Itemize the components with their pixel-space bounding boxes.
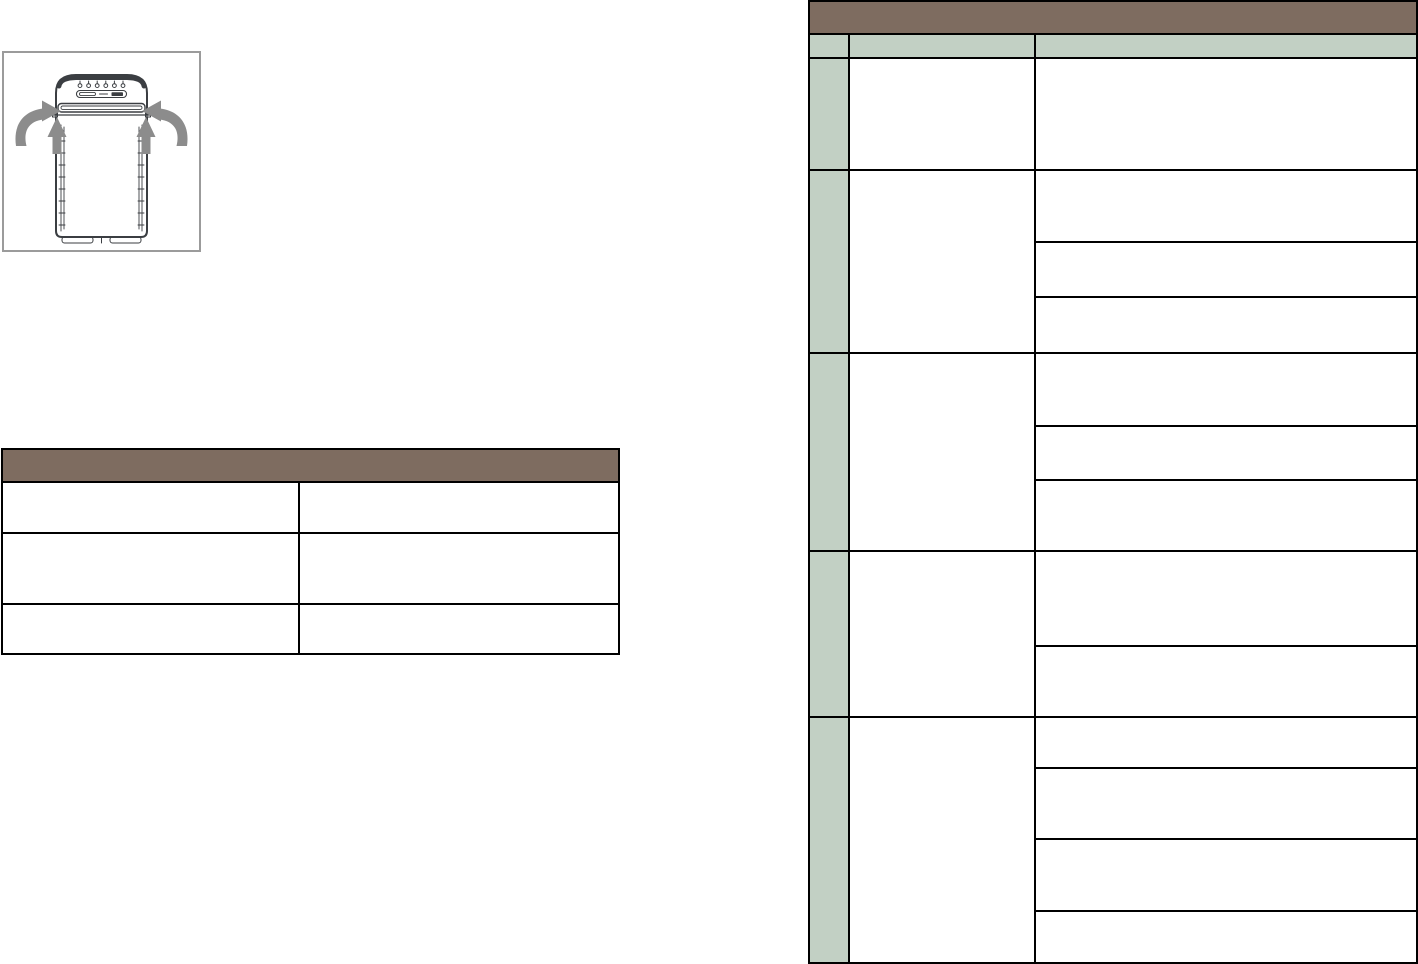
table-cell bbox=[299, 604, 619, 654]
column-header bbox=[1035, 34, 1417, 58]
detail-cell bbox=[1035, 551, 1417, 646]
group-label-cell bbox=[809, 58, 849, 170]
group-label-cell bbox=[809, 717, 849, 963]
group-middle-cell bbox=[849, 353, 1035, 551]
side-grille-ticks bbox=[59, 141, 144, 225]
table-row bbox=[809, 717, 1417, 768]
table-cell bbox=[2, 604, 299, 654]
detail-cell bbox=[1035, 480, 1417, 551]
table-cell bbox=[2, 482, 299, 533]
detail-cell bbox=[1035, 426, 1417, 480]
column-header bbox=[809, 34, 849, 58]
group-middle-cell bbox=[849, 58, 1035, 170]
group-label-cell bbox=[809, 353, 849, 551]
manual-page bbox=[0, 0, 1418, 964]
table-row bbox=[809, 170, 1417, 242]
column-header bbox=[849, 34, 1035, 58]
detail-cell bbox=[1035, 911, 1417, 963]
table-row bbox=[809, 353, 1417, 426]
group-middle-cell bbox=[849, 717, 1035, 963]
display-bar bbox=[77, 91, 127, 98]
detail-cell bbox=[1035, 768, 1417, 839]
right-table-title-row bbox=[809, 1, 1417, 34]
group-middle-cell bbox=[849, 551, 1035, 717]
table-row bbox=[2, 533, 619, 604]
airflow-arrows-right bbox=[137, 101, 188, 155]
detail-cell bbox=[1035, 717, 1417, 768]
detail-cell bbox=[1035, 646, 1417, 717]
curved-inward-airflow-arrow-left bbox=[15, 109, 43, 147]
curved-inward-airflow-arrow-right bbox=[159, 109, 187, 147]
air-outlet-slot bbox=[53, 104, 151, 118]
detail-cell bbox=[1035, 839, 1417, 911]
group-middle-cell bbox=[849, 170, 1035, 353]
detail-cell bbox=[1035, 353, 1417, 426]
control-panel-buttons bbox=[78, 81, 125, 88]
detail-cell bbox=[1035, 58, 1417, 170]
detail-cell bbox=[1035, 297, 1417, 353]
device-figure bbox=[2, 51, 201, 252]
device-body bbox=[56, 117, 147, 243]
airflow-arrows-left bbox=[15, 101, 66, 155]
group-label-cell bbox=[809, 551, 849, 717]
left-table-title bbox=[2, 449, 619, 482]
right-table-title bbox=[809, 1, 1417, 34]
detail-cell bbox=[1035, 242, 1417, 297]
table-cell bbox=[299, 533, 619, 604]
table-row bbox=[809, 551, 1417, 646]
detail-cell bbox=[1035, 170, 1417, 242]
head-top-band bbox=[59, 78, 144, 87]
left-table-title-row bbox=[2, 449, 619, 482]
table-cell bbox=[299, 482, 619, 533]
table-row bbox=[809, 58, 1417, 170]
left-table bbox=[1, 448, 620, 655]
table-row bbox=[2, 482, 619, 533]
air-purifier-illustration bbox=[4, 53, 199, 250]
table-cell bbox=[2, 533, 299, 604]
right-table bbox=[808, 0, 1418, 964]
right-table-header-row bbox=[809, 34, 1417, 58]
table-row bbox=[2, 604, 619, 654]
group-label-cell bbox=[809, 170, 849, 353]
